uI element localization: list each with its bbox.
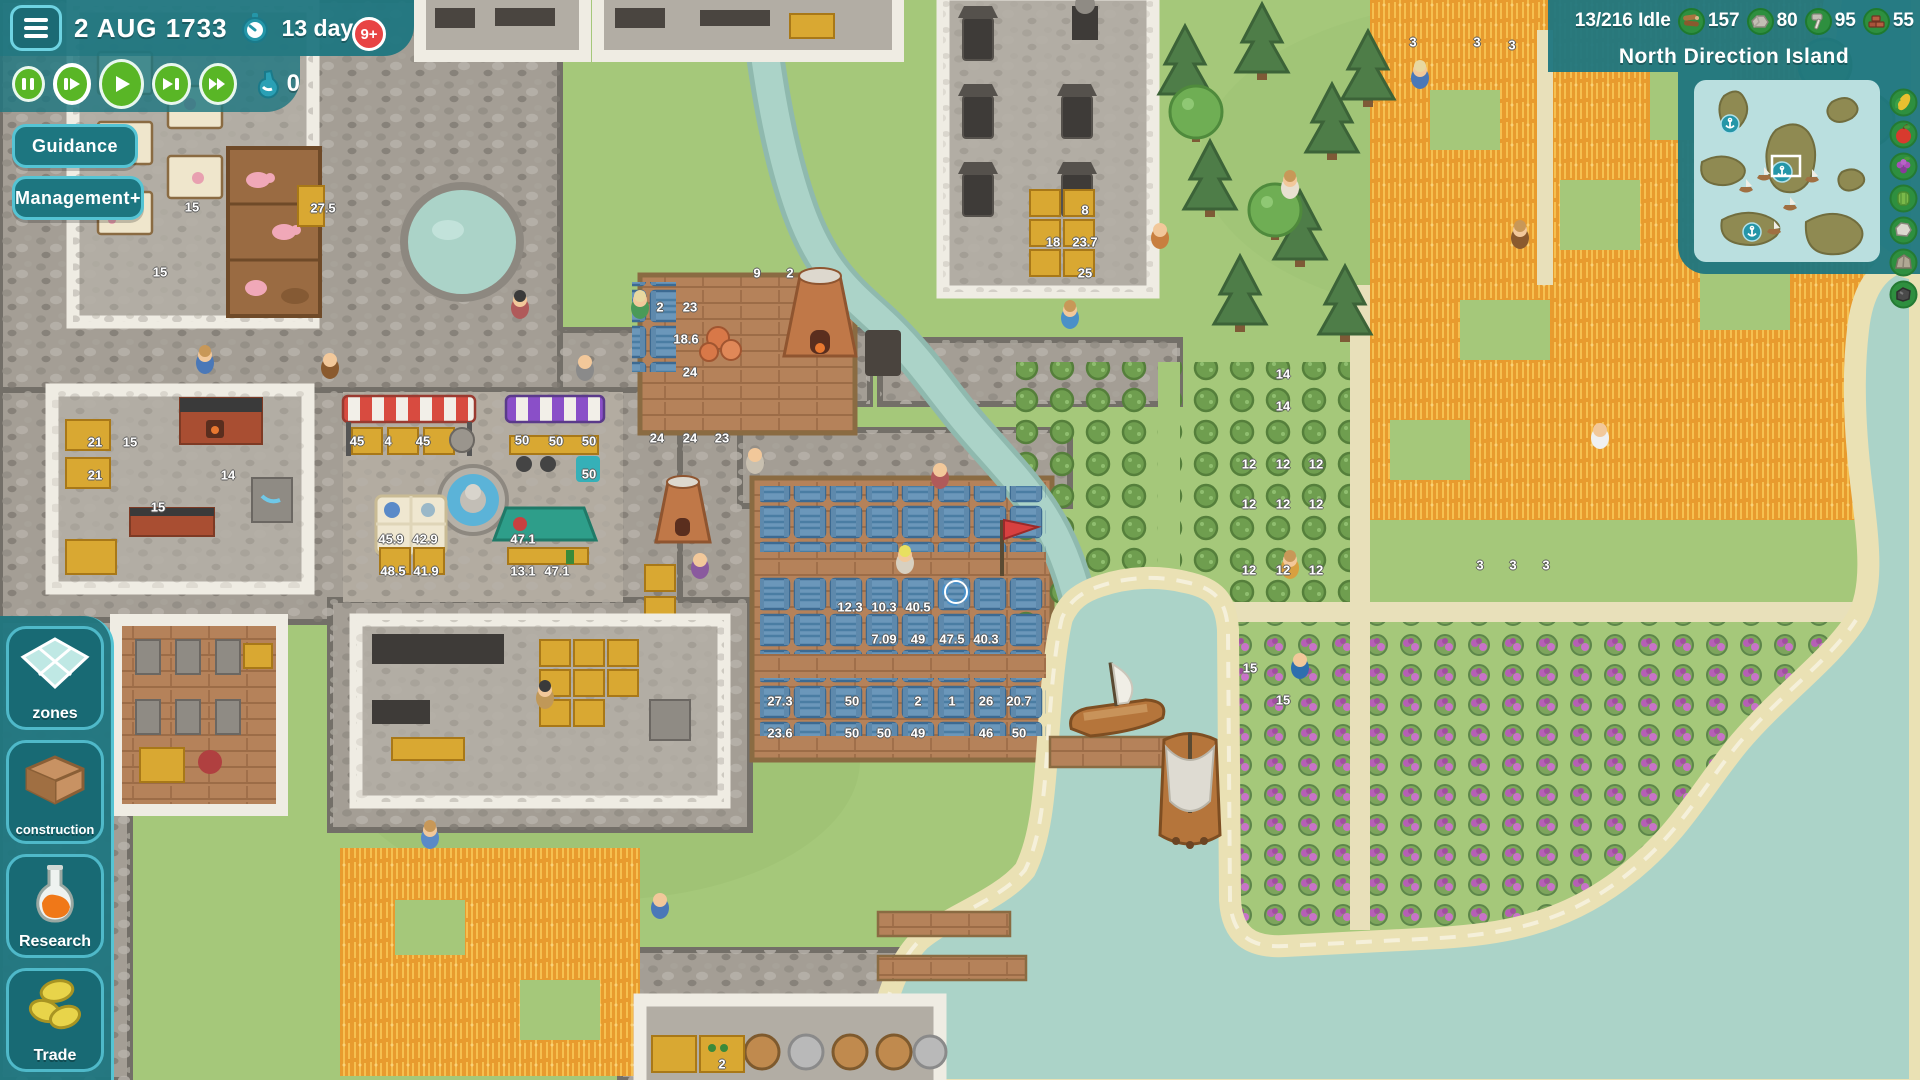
kitchen-building[interactable]	[52, 390, 308, 588]
sidebar-label: zones	[32, 705, 77, 723]
wood-icon	[1678, 8, 1705, 35]
top-buildings[interactable]	[420, 0, 898, 56]
game-world[interactable]	[0, 0, 1920, 1080]
resources-panel: 13/216 Idle 157 80 95 55	[1548, 0, 1920, 42]
play-icon	[112, 74, 132, 94]
play-fast-button[interactable]	[152, 63, 190, 105]
bricks-resource: 55	[1863, 8, 1914, 35]
sidebar-label: construction	[16, 822, 95, 837]
guidance-button[interactable]: Guidance	[12, 124, 138, 168]
apple-icon[interactable]	[1889, 120, 1918, 149]
play-slow-button[interactable]	[53, 63, 91, 105]
game-screen: 151527.5211521141581823.7259222318.62424…	[0, 0, 1920, 1080]
hamburger-icon	[24, 18, 48, 22]
corn-icon[interactable]	[1889, 88, 1918, 117]
play-fast-icon	[162, 77, 180, 91]
play-fastest-button[interactable]	[199, 63, 237, 105]
sidebar-item-construction[interactable]: construction	[6, 740, 104, 844]
sidebar-label: Trade	[34, 1047, 77, 1065]
workshop-building[interactable]	[943, 0, 1153, 292]
stone-icon	[1747, 8, 1774, 35]
game-date: 2 AUG 1733	[74, 13, 228, 44]
wood-resource: 157	[1678, 8, 1740, 35]
crop-rail	[1889, 88, 1918, 309]
research-flask-icon	[28, 863, 82, 925]
island-name: North Direction Island	[1619, 45, 1849, 69]
pause-button[interactable]	[12, 66, 45, 102]
cabbage-icon[interactable]	[1889, 184, 1918, 213]
play-button[interactable]	[99, 59, 144, 109]
craft-building[interactable]	[356, 620, 724, 802]
play-slow-icon	[63, 77, 81, 91]
notification-badge[interactable]: 9+	[352, 17, 386, 51]
stone-icon[interactable]	[1889, 216, 1918, 245]
management-button[interactable]: Management+	[12, 176, 144, 220]
hammer-icon	[1805, 8, 1832, 35]
boulder-icon[interactable]	[1889, 248, 1918, 277]
room-corner-icon	[17, 749, 93, 807]
stockpile[interactable]	[760, 486, 1046, 736]
grapes-icon[interactable]	[1889, 152, 1918, 181]
bricks-icon	[1863, 8, 1890, 35]
pause-icon	[21, 77, 35, 91]
play-fastest-icon	[208, 77, 228, 91]
sidebar-item-research[interactable]: Research	[6, 854, 104, 958]
tools-resource: 95	[1805, 8, 1856, 35]
idle-count: 13/216 Idle	[1575, 10, 1671, 32]
speed-panel: 0	[0, 56, 300, 112]
sidebar-item-zones[interactable]: zones	[6, 626, 104, 730]
zone-grid-icon	[19, 635, 91, 691]
sidebar-label: Research	[19, 933, 91, 951]
sidebar-item-trade[interactable]: Trade	[6, 968, 104, 1072]
minimap[interactable]	[1694, 80, 1880, 262]
coal-icon[interactable]	[1889, 280, 1918, 309]
island-name-bar: North Direction Island	[1548, 42, 1920, 72]
stone-resource: 80	[1747, 8, 1798, 35]
build-sidebar: zones construction Research Trade	[0, 616, 114, 1080]
brew-count: 0	[287, 70, 300, 98]
trade-coins-icon	[25, 977, 85, 1035]
minimap-panel	[1678, 72, 1920, 274]
stopwatch-icon	[240, 12, 270, 44]
flask-icon	[255, 69, 281, 99]
mill-building[interactable]	[116, 620, 282, 810]
menu-button[interactable]	[10, 5, 62, 51]
brewery-building[interactable]	[640, 1000, 946, 1080]
trade-ship[interactable]	[1160, 733, 1220, 849]
